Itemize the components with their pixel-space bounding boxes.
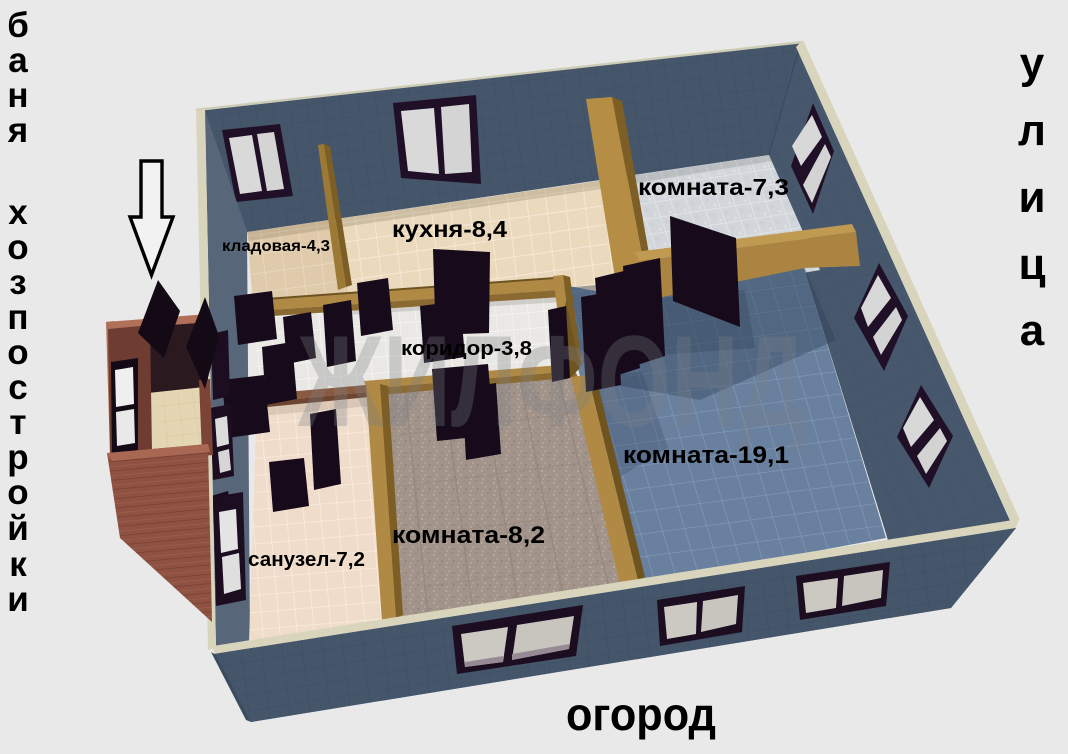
svg-text:о: о — [7, 473, 28, 512]
svg-text:а: а — [8, 41, 28, 80]
svg-text:коридор-3,8: коридор-3,8 — [401, 338, 532, 360]
svg-text:б: б — [7, 6, 29, 45]
svg-text:у: у — [1020, 39, 1045, 88]
svg-text:я: я — [7, 111, 28, 150]
svg-text:к: к — [9, 545, 27, 584]
svg-text:х: х — [8, 193, 28, 232]
svg-text:й: й — [7, 509, 29, 548]
svg-text:н: н — [7, 76, 28, 115]
svg-text:ц: ц — [1018, 240, 1045, 289]
svg-text:санузел-7,2: санузел-7,2 — [248, 549, 365, 571]
svg-text:л: л — [1018, 106, 1046, 155]
svg-text:комната-8,2: комната-8,2 — [392, 522, 545, 549]
svg-text:ЖИЛФОНД: ЖИЛФОНД — [297, 308, 806, 454]
svg-text:т: т — [9, 403, 26, 442]
svg-text:огород: огород — [566, 688, 716, 740]
svg-text:з: з — [9, 263, 26, 302]
svg-text:о: о — [7, 333, 28, 372]
svg-text:р: р — [7, 438, 28, 477]
svg-text:о: о — [7, 228, 28, 267]
svg-text:комната-19,1: комната-19,1 — [623, 442, 789, 469]
svg-text:а: а — [1020, 306, 1045, 355]
svg-text:кухня-8,4: кухня-8,4 — [392, 216, 507, 242]
svg-text:п: п — [7, 298, 28, 337]
svg-text:и: и — [7, 580, 29, 619]
svg-text:и: и — [1018, 173, 1045, 222]
svg-text:с: с — [8, 368, 27, 407]
svg-text:кладовая-4,3: кладовая-4,3 — [222, 238, 330, 255]
svg-text:комната-7,3: комната-7,3 — [638, 174, 789, 200]
